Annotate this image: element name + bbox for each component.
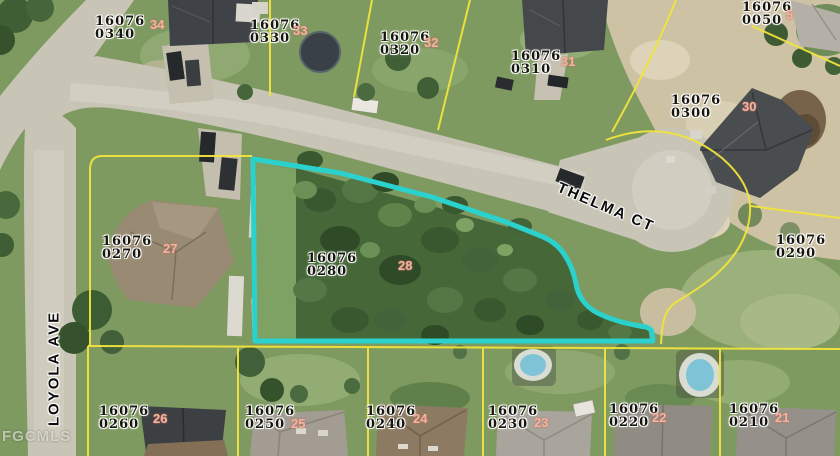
parcel-label: 16076 0290	[776, 234, 826, 260]
lot-number: 26	[153, 412, 167, 425]
lot-number: 30	[742, 100, 756, 113]
map-labels: 16076 0340 16076 0330 16076 0320 16076 0…	[0, 0, 840, 456]
aerial-map: 16076 0340 16076 0330 16076 0320 16076 0…	[0, 0, 840, 456]
lot-number: 23	[534, 416, 548, 429]
parcel-label: 16076 0310	[511, 50, 561, 76]
street-label-loyola-ave: LOYOLA AVE	[46, 309, 63, 429]
parcel-label: 16076 0280	[307, 252, 357, 278]
watermark: FGCMLS	[2, 428, 71, 445]
street-label-thelma-ct: THELMA CT	[555, 179, 654, 234]
parcel-label: 16076 0260	[99, 405, 149, 431]
parcel-label: 16076 0210	[729, 403, 779, 429]
lot-number: 27	[163, 242, 177, 255]
parcel-label: 16076 0230	[488, 405, 538, 431]
parcel-label: 16076 0300	[671, 94, 721, 120]
lot-number: 22	[652, 411, 666, 424]
parcel-label: 16076 0250	[245, 405, 295, 431]
lot-number: 5	[786, 8, 793, 21]
lot-number: 21	[775, 411, 789, 424]
lot-number: 24	[413, 412, 427, 425]
parcel-label: 16076 0270	[102, 235, 152, 261]
lot-number: 31	[561, 55, 575, 68]
parcel-label: 16076 0320	[380, 31, 430, 57]
parcel-label: 16076 0240	[366, 405, 416, 431]
lot-number: 34	[150, 18, 164, 31]
lot-number: 25	[291, 417, 305, 430]
parcel-label: 16076 0340	[95, 15, 145, 41]
parcel-label: 16076 0050	[742, 1, 792, 27]
lot-number: 28	[398, 259, 412, 272]
lot-number: 32	[424, 36, 438, 49]
lot-number: 33	[293, 24, 307, 37]
